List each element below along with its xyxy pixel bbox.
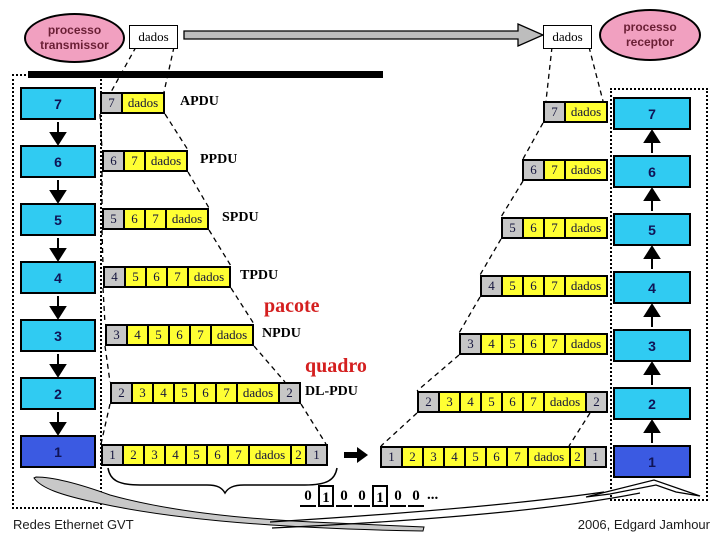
- bit: 0: [336, 485, 352, 507]
- pdu-label-dlpdu: DL-PDU: [305, 384, 358, 400]
- receptor-process-label-line2: receptor: [626, 35, 674, 50]
- payload-cell: 5: [464, 446, 487, 468]
- payload-cell: 6: [206, 444, 229, 466]
- pdu-row-spdu-rx: 567dados: [501, 217, 608, 239]
- pdu-row-frame-rx: 1234567dados21: [380, 446, 607, 468]
- payload-cell: 4: [126, 324, 149, 346]
- layer-box-1: 1: [613, 445, 691, 478]
- payload-cell: 6: [522, 333, 545, 355]
- layer-box-5: 5: [613, 213, 691, 246]
- payload-cell: 3: [131, 382, 154, 404]
- layer-box-7: 7: [613, 97, 691, 130]
- payload-cell: 3: [422, 446, 445, 468]
- pdu-label-npdu: NPDU: [262, 326, 301, 342]
- payload-cell: 7: [543, 333, 566, 355]
- payload-cell: 6: [522, 217, 545, 239]
- bit: 0: [354, 485, 370, 507]
- payload-cell: 7: [543, 275, 566, 297]
- layer-box-7: 7: [20, 87, 96, 120]
- dados-cell: dados: [210, 324, 254, 346]
- payload-cell: 6: [123, 208, 146, 230]
- pdu-row-dlpdu-tx: 234567dados2: [110, 382, 301, 404]
- payload-cell: 5: [480, 391, 503, 413]
- receptor-layer-stack: 7654321: [613, 97, 691, 478]
- payload-cell: 6: [485, 446, 508, 468]
- layer-box-2: 2: [613, 387, 691, 420]
- pdu-row-tpdu-rx: 4567dados: [480, 275, 608, 297]
- dados-cell: dados: [165, 208, 209, 230]
- layer-box-4: 4: [20, 261, 96, 294]
- header-cell: 1: [305, 444, 328, 466]
- payload-cell: 5: [501, 333, 524, 355]
- payload-cell: 7: [543, 159, 566, 181]
- payload-cell: 7: [144, 208, 167, 230]
- bit: 0: [390, 485, 406, 507]
- payload-cell: 3: [143, 444, 166, 466]
- bit-waveform: 0100100...: [298, 483, 438, 507]
- dados-cell: dados: [543, 391, 587, 413]
- pdu-row-ppdu-rx: 67dados: [522, 159, 608, 181]
- pdu-row-ppdu-tx: 67dados: [102, 150, 188, 172]
- header-cell: 1: [380, 446, 403, 468]
- receptor-process-label-line1: processo: [623, 20, 676, 35]
- pdu-label-apdu: APDU: [180, 94, 219, 110]
- dados-cell: dados: [564, 217, 608, 239]
- payload-cell: 7: [215, 382, 238, 404]
- pdu-row-frame-tx: 1234567dados21: [101, 444, 328, 466]
- transmission-arrow: [184, 24, 543, 46]
- dados-box-receptor: dados: [543, 25, 592, 49]
- pdu-row-tpdu-tx: 4567dados: [103, 266, 231, 288]
- layer-box-3: 3: [20, 319, 96, 352]
- header-cell: 2: [110, 382, 133, 404]
- header-cell: 2: [417, 391, 440, 413]
- header-cell: 4: [480, 275, 503, 297]
- payload-cell: 7: [506, 446, 529, 468]
- pdu-row-spdu-tx: 567dados: [102, 208, 209, 230]
- layer-box-6: 6: [613, 155, 691, 188]
- header-cell: 3: [105, 324, 128, 346]
- pdu-row-npdu-rx: 34567dados: [459, 333, 608, 355]
- payload-cell: 4: [459, 391, 482, 413]
- payload-cell: 6: [522, 275, 545, 297]
- footer-course-title: Redes Ethernet GVT: [13, 517, 134, 532]
- header-cell: 1: [101, 444, 124, 466]
- bit: 1: [318, 485, 334, 507]
- dados-cell: dados: [187, 266, 231, 288]
- dados-cell: dados: [236, 382, 280, 404]
- bit: 1: [372, 485, 388, 507]
- bit: 0: [408, 485, 424, 507]
- dados-cell: dados: [564, 275, 608, 297]
- payload-cell: 4: [152, 382, 175, 404]
- receptor-process: processo receptor: [599, 9, 701, 61]
- dados-cell: dados: [144, 150, 188, 172]
- payload-cell: 5: [147, 324, 170, 346]
- header-cell: 6: [102, 150, 125, 172]
- dados-cell: dados: [121, 92, 165, 114]
- payload-cell: 6: [145, 266, 168, 288]
- payload-cell: 2: [401, 446, 424, 468]
- layer-box-2: 2: [20, 377, 96, 410]
- pdu-label-tpdu: TPDU: [240, 268, 278, 284]
- payload-cell: 5: [501, 275, 524, 297]
- bits-ellipsis: ...: [427, 483, 438, 507]
- header-cell: 5: [102, 208, 125, 230]
- payload-cell: 7: [522, 391, 545, 413]
- payload-cell: 4: [164, 444, 187, 466]
- pdu-row-dlpdu-rx: 234567dados2: [417, 391, 608, 413]
- payload-cell: 2: [122, 444, 145, 466]
- pdu-row-apdu-tx: 7dados: [100, 92, 165, 114]
- dados-cell: dados: [248, 444, 292, 466]
- pdu-label-spdu: SPDU: [222, 210, 259, 226]
- payload-cell: 5: [124, 266, 147, 288]
- frame-transfer-arrow: [344, 447, 368, 463]
- layer-box-6: 6: [20, 145, 96, 178]
- header-cell: 7: [100, 92, 123, 114]
- payload-cell: 7: [123, 150, 146, 172]
- layer-box-5: 5: [20, 203, 96, 236]
- dados-cell: dados: [527, 446, 571, 468]
- header-cell: 7: [543, 101, 566, 123]
- dados-cell: dados: [564, 333, 608, 355]
- dados-cell: dados: [564, 101, 608, 123]
- transmitter-process-label-line2: transmissor: [40, 38, 109, 53]
- layer-box-1: 1: [20, 435, 96, 468]
- payload-cell: 5: [173, 382, 196, 404]
- header-cell: 4: [103, 266, 126, 288]
- dados-box-transmitter: dados: [129, 25, 178, 49]
- pdu-row-npdu-tx: 34567dados: [105, 324, 254, 346]
- pdu-label-pacote: pacote: [264, 295, 320, 318]
- layer-box-4: 4: [613, 271, 691, 304]
- dados-cell: dados: [564, 159, 608, 181]
- footer-author: 2006, Edgard Jamhour: [578, 517, 710, 532]
- layer-box-3: 3: [613, 329, 691, 362]
- transmitter-process: processo transmissor: [24, 13, 125, 63]
- payload-cell: 6: [194, 382, 217, 404]
- payload-cell: 7: [543, 217, 566, 239]
- payload-cell: 7: [189, 324, 212, 346]
- payload-cell: 5: [185, 444, 208, 466]
- payload-cell: 7: [166, 266, 189, 288]
- payload-cell: 3: [438, 391, 461, 413]
- header-cell: 2: [585, 391, 608, 413]
- payload-cell: 7: [227, 444, 250, 466]
- header-cell: 1: [584, 446, 607, 468]
- pdu-label-ppdu: PPDU: [200, 152, 237, 168]
- pdu-row-apdu-rx: 7dados: [543, 101, 608, 123]
- header-cell: 3: [459, 333, 482, 355]
- payload-cell: 4: [443, 446, 466, 468]
- osi-encapsulation-slide: processo transmissor processo receptor d…: [0, 0, 720, 540]
- payload-cell: 6: [168, 324, 191, 346]
- payload-cell: 6: [501, 391, 524, 413]
- payload-cell: 4: [480, 333, 503, 355]
- bit: 0: [300, 485, 316, 507]
- transmitter-layer-stack: 7654321: [20, 87, 96, 468]
- transmitter-process-label-line1: processo: [48, 23, 101, 38]
- header-cell: 6: [522, 159, 545, 181]
- header-cell: 2: [278, 382, 301, 404]
- separator-bar: [28, 71, 383, 78]
- header-cell: 5: [501, 217, 524, 239]
- pdu-label-quadro: quadro: [305, 355, 367, 378]
